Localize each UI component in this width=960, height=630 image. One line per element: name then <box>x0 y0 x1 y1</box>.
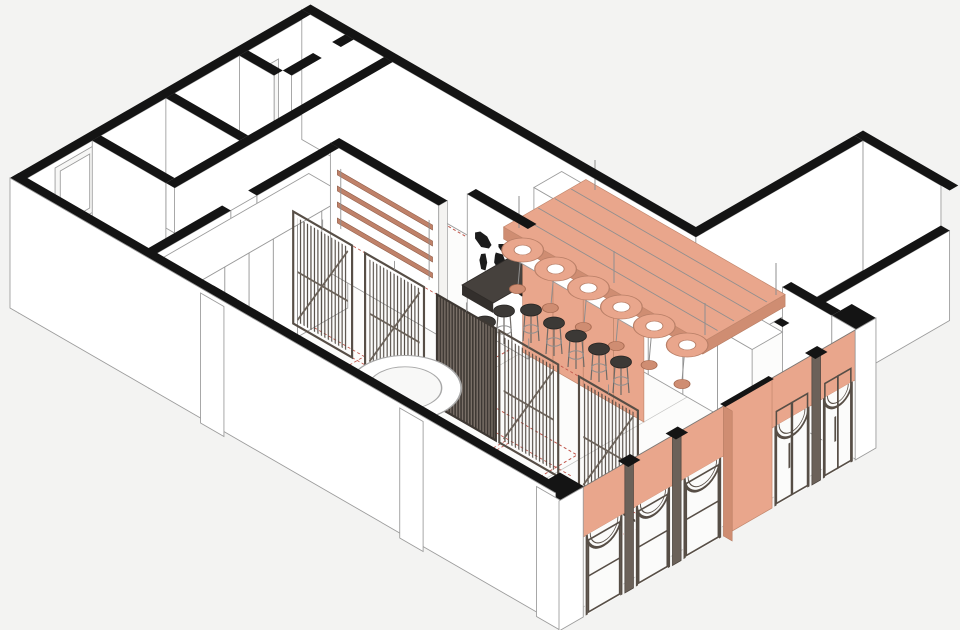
bar-stool <box>521 304 542 343</box>
east-corner-pier <box>855 318 876 460</box>
axonometric-drawing <box>0 0 960 630</box>
bar-stool <box>566 330 587 369</box>
facade-bay-glass-door <box>774 392 810 507</box>
south-corner-pier-side <box>536 487 560 630</box>
south-corner-pier <box>559 487 583 630</box>
coral-pier-side <box>724 406 733 541</box>
bar-stool <box>589 343 610 382</box>
bar-stool <box>544 317 565 356</box>
drawing-canvas <box>0 0 960 630</box>
bar-stool <box>611 356 632 395</box>
